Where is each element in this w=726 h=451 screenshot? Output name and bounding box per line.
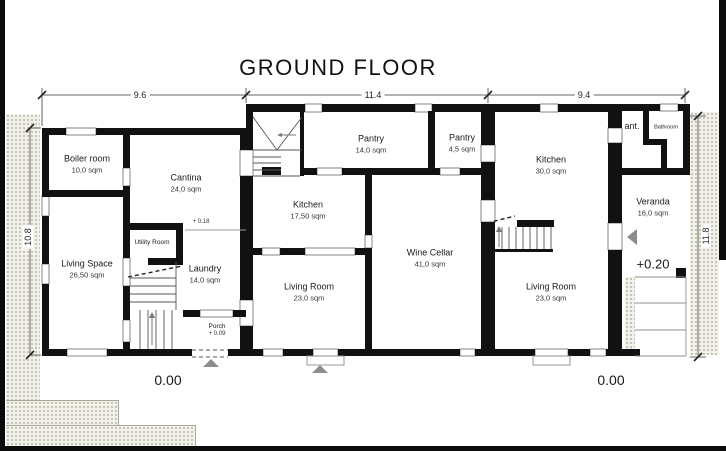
room-label-utility-room: Utility Room	[134, 239, 169, 247]
room-label-veranda: Veranda 16,0 sqm	[636, 196, 670, 217]
page-title: GROUND FLOOR	[239, 55, 437, 81]
room-label-cantina: Cantina 24,0 sqm	[170, 172, 201, 193]
room-label-laundry: Laundry 14,0 sqm	[189, 263, 222, 284]
floor-plan-sheet: GROUND FLOOR 9.6 11.4 9.4 10.8 11.8 Boil…	[0, 0, 726, 451]
room-label-anteroom: ant.	[624, 121, 639, 133]
room-label-boiler-room: Boiler room 10,0 sqm	[64, 153, 110, 174]
dim-width-left: 9.6	[131, 90, 150, 100]
room-label-living-room-right: Living Room 23,0 sqm	[526, 281, 576, 302]
room-label-kitchen-small: Kitchen 17,50 sqm	[290, 199, 325, 220]
dim-height-left: 10.8	[23, 225, 33, 249]
room-label-pantry-large: Pantry 14,0 sqm	[356, 133, 387, 154]
level-laundry-step: + 0.18	[193, 219, 210, 225]
entry-triangle-porch	[203, 359, 219, 367]
dim-width-middle: 11.4	[362, 90, 385, 100]
room-label-wine-cellar: Wine Cellar 41,0 sqm	[407, 247, 454, 268]
room-label-living-space: Living Space 26,50 sqm	[61, 258, 113, 279]
level-ground-right: 0.00	[597, 372, 624, 388]
dim-width-right: 9.4	[575, 90, 594, 100]
entry-triangle-veranda	[627, 229, 637, 245]
room-label-kitchen-large: Kitchen 30,0 sqm	[536, 154, 567, 175]
level-ground-left: 0.00	[154, 372, 181, 388]
room-label-pantry-small: Pantry 4,5 sqm	[449, 132, 476, 153]
room-label-porch: Porch + 0.09	[209, 323, 226, 339]
entry-triangle-middle	[312, 365, 328, 373]
room-label-bathroom: Bathroom	[654, 124, 678, 131]
room-label-living-room-middle: Living Room 23,0 sqm	[284, 281, 334, 302]
dim-height-right: 11.8	[701, 225, 711, 248]
level-veranda: +0.20	[637, 257, 670, 272]
